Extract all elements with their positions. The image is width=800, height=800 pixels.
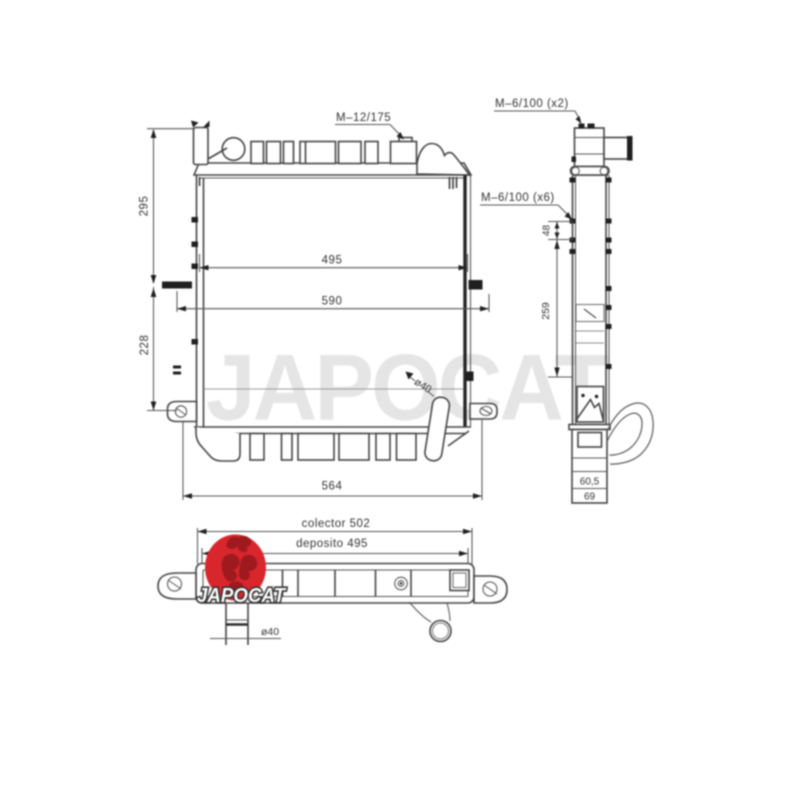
svg-text:JAPOCAT: JAPOCAT [206,335,608,440]
svg-text:colector 502: colector 502 [302,518,371,530]
svg-text:JAPOCAT: JAPOCAT [197,584,286,607]
svg-text:69: 69 [584,492,596,503]
svg-text:295: 295 [139,196,151,217]
svg-text:590: 590 [322,296,343,308]
svg-text:M–6/100 (x2): M–6/100 (x2) [495,98,569,110]
svg-text:M–6/100 (x6): M–6/100 (x6) [481,192,555,204]
svg-text:M–12/175: M–12/175 [336,112,391,124]
svg-text:495: 495 [322,255,343,267]
svg-text:564: 564 [322,481,343,493]
svg-text:deposito 495: deposito 495 [296,538,368,550]
svg-text:48: 48 [542,225,553,237]
svg-text:259: 259 [540,302,552,320]
svg-text:60,5: 60,5 [580,477,600,488]
svg-text:ø40: ø40 [261,626,279,638]
svg-text:228: 228 [139,335,151,356]
